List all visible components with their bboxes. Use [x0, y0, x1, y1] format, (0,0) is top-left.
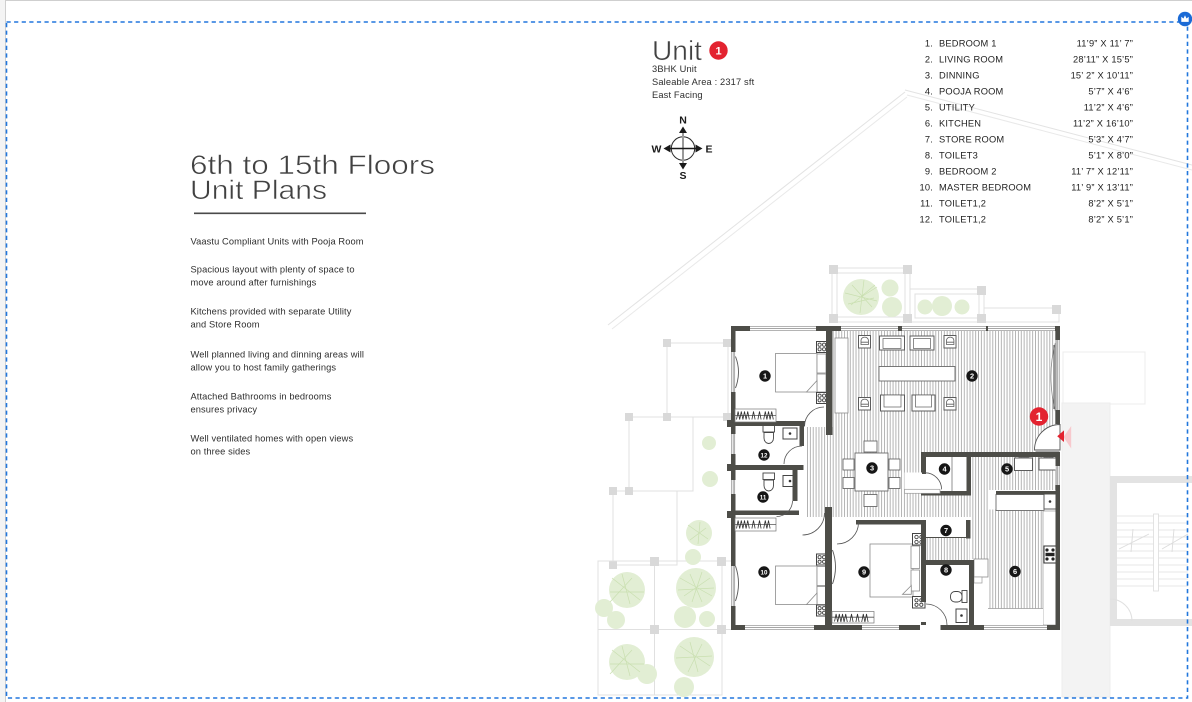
- svg-text:11’ 9” X 13’11”: 11’ 9” X 13’11”: [1071, 183, 1133, 193]
- svg-text:1: 1: [715, 46, 721, 58]
- svg-text:on three sides: on three sides: [191, 447, 251, 457]
- svg-text:East Facing: East Facing: [652, 90, 703, 100]
- svg-text:move around after furnishings: move around after furnishings: [191, 278, 317, 288]
- svg-text:W: W: [652, 143, 662, 155]
- svg-text:Saleable Area : 2317 sft: Saleable Area : 2317 sft: [652, 77, 755, 87]
- svg-text:E: E: [705, 143, 712, 155]
- svg-text:KITCHEN: KITCHEN: [939, 119, 981, 129]
- svg-text:3.: 3.: [925, 71, 933, 81]
- svg-text:2.: 2.: [925, 55, 933, 65]
- svg-text:1.: 1.: [925, 39, 933, 49]
- svg-text:3: 3: [870, 463, 874, 472]
- svg-text:10.: 10.: [919, 183, 933, 193]
- svg-text:TOILET3: TOILET3: [939, 151, 978, 161]
- svg-text:7.: 7.: [925, 135, 933, 145]
- svg-text:7: 7: [944, 526, 948, 535]
- svg-text:11.: 11.: [920, 199, 933, 209]
- svg-text:8’2” X 5’1”: 8’2” X 5’1”: [1088, 199, 1133, 209]
- svg-text:5.: 5.: [925, 103, 933, 113]
- svg-text:DINNING: DINNING: [939, 71, 980, 81]
- svg-text:28’11” X 15’5”: 28’11” X 15’5”: [1073, 55, 1133, 65]
- svg-text:6.: 6.: [925, 119, 933, 129]
- svg-text:11’9” X 11’ 7”: 11’9” X 11’ 7”: [1077, 39, 1133, 49]
- svg-text:Kitchens provided with separat: Kitchens provided with separate Utility: [191, 307, 352, 317]
- svg-text:15’ 2” X 10’11”: 15’ 2” X 10’11”: [1071, 71, 1133, 81]
- svg-text:5: 5: [1005, 464, 1009, 473]
- svg-text:N: N: [679, 115, 687, 127]
- svg-text:1: 1: [1036, 410, 1043, 424]
- svg-text:S: S: [679, 170, 686, 182]
- svg-text:11’2” X 4’6”: 11’2” X 4’6”: [1084, 103, 1133, 113]
- svg-text:TOILET1,2: TOILET1,2: [939, 215, 986, 225]
- svg-text:9: 9: [862, 567, 866, 576]
- svg-text:allow you to host family gathe: allow you to host family gatherings: [191, 363, 337, 373]
- svg-text:8: 8: [944, 565, 948, 574]
- svg-text:1: 1: [763, 371, 767, 380]
- svg-text:STORE ROOM: STORE ROOM: [939, 135, 1004, 145]
- svg-text:11’ 7” X 12’11”: 11’ 7” X 12’11”: [1071, 167, 1133, 177]
- svg-text:3BHK Unit: 3BHK Unit: [652, 64, 697, 74]
- svg-text:Attached Bathrooms in bedrooms: Attached Bathrooms in bedrooms: [191, 392, 332, 402]
- svg-text:5’7” X 4’6”: 5’7” X 4’6”: [1088, 87, 1133, 97]
- svg-text:8’2” X 5’1”: 8’2” X 5’1”: [1088, 215, 1133, 225]
- svg-text:6: 6: [1013, 567, 1017, 576]
- svg-text:BEDROOM 2: BEDROOM 2: [939, 167, 997, 177]
- svg-text:UTILITY: UTILITY: [939, 103, 975, 113]
- svg-text:MASTER BEDROOM: MASTER BEDROOM: [939, 183, 1031, 193]
- svg-text:12: 12: [761, 452, 768, 459]
- svg-text:ensures privacy: ensures privacy: [191, 405, 258, 415]
- svg-text:11: 11: [760, 494, 767, 501]
- svg-text:8.: 8.: [925, 151, 933, 161]
- svg-text:and Store Room: and Store Room: [191, 320, 260, 330]
- svg-text:BEDROOM 1: BEDROOM 1: [939, 39, 997, 49]
- svg-text:4.: 4.: [925, 87, 933, 97]
- svg-text:TOILET1,2: TOILET1,2: [939, 199, 986, 209]
- svg-text:5’3” X 4’7”: 5’3” X 4’7”: [1088, 135, 1133, 145]
- svg-text:LIVING ROOM: LIVING ROOM: [939, 55, 1003, 65]
- svg-text:9.: 9.: [925, 167, 933, 177]
- svg-text:POOJA ROOM: POOJA ROOM: [939, 87, 1004, 97]
- svg-text:Vaastu Compliant Units with Po: Vaastu Compliant Units with Pooja Room: [191, 237, 364, 247]
- svg-text:12.: 12.: [919, 215, 933, 225]
- svg-text:10: 10: [761, 569, 768, 576]
- svg-text:Unit: Unit: [652, 35, 702, 66]
- svg-text:Well ventilated homes with ope: Well ventilated homes with open views: [191, 434, 354, 444]
- svg-text:Spacious layout with plenty of: Spacious layout with plenty of space to: [191, 265, 355, 275]
- svg-text:Well planned living and dinnin: Well planned living and dinning areas wi…: [191, 350, 365, 360]
- svg-text:Unit Plans: Unit Plans: [190, 175, 327, 205]
- svg-text:2: 2: [970, 371, 974, 380]
- svg-text:5’1” X 8’0”: 5’1” X 8’0”: [1088, 151, 1133, 161]
- svg-text:11’2” X 16’10”: 11’2” X 16’10”: [1073, 119, 1133, 129]
